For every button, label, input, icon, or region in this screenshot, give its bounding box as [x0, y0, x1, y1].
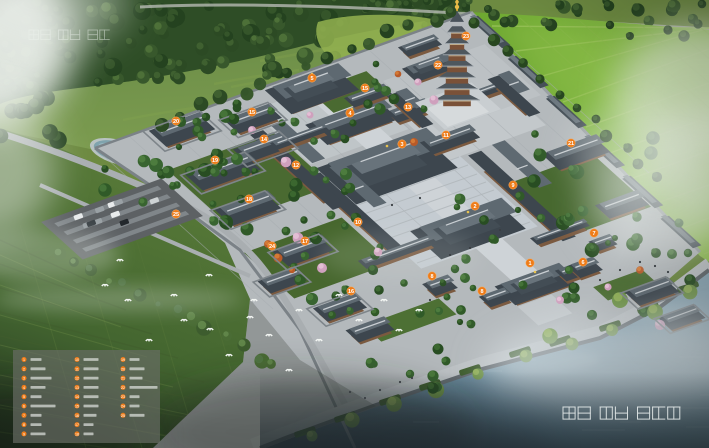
- svg-text:24: 24: [121, 405, 125, 409]
- svg-text:13: 13: [405, 105, 411, 111]
- svg-text:17: 17: [75, 423, 79, 427]
- svg-text:10: 10: [355, 220, 361, 226]
- svg-text:14: 14: [75, 395, 79, 399]
- svg-text:23: 23: [463, 34, 469, 40]
- svg-text:8: 8: [480, 289, 483, 295]
- svg-text:3: 3: [400, 142, 403, 148]
- svg-text:17: 17: [302, 239, 308, 245]
- svg-text:7: 7: [592, 231, 595, 237]
- svg-text:25: 25: [173, 212, 179, 218]
- svg-text:15: 15: [75, 405, 79, 409]
- svg-text:15: 15: [249, 110, 255, 116]
- svg-text:4: 4: [23, 386, 25, 390]
- svg-text:9: 9: [23, 432, 25, 436]
- svg-text:11: 11: [75, 367, 79, 371]
- svg-text:8: 8: [23, 423, 25, 427]
- svg-text:22: 22: [435, 63, 441, 69]
- svg-text:20: 20: [121, 367, 125, 371]
- svg-text:9: 9: [511, 183, 514, 189]
- svg-text:7: 7: [23, 414, 25, 418]
- svg-text:22: 22: [121, 386, 125, 390]
- svg-text:5: 5: [310, 76, 313, 82]
- svg-text:8: 8: [430, 274, 433, 280]
- svg-text:20: 20: [173, 119, 179, 125]
- svg-text:23: 23: [121, 395, 125, 399]
- svg-text:2: 2: [23, 367, 25, 371]
- svg-text:21: 21: [121, 377, 125, 381]
- svg-text:12: 12: [293, 163, 299, 169]
- svg-text:5: 5: [23, 395, 25, 399]
- svg-text:11: 11: [443, 133, 449, 139]
- svg-text:25: 25: [121, 414, 125, 418]
- svg-text:18: 18: [246, 197, 252, 203]
- svg-text:2: 2: [473, 204, 476, 210]
- svg-text:21: 21: [568, 141, 574, 147]
- svg-text:10: 10: [75, 358, 79, 362]
- svg-text:19: 19: [121, 358, 125, 362]
- svg-text:3: 3: [23, 377, 25, 381]
- svg-text:1: 1: [528, 261, 531, 267]
- svg-text:18: 18: [75, 432, 79, 436]
- svg-text:6: 6: [581, 260, 584, 266]
- svg-text:1: 1: [23, 358, 25, 362]
- svg-text:19: 19: [212, 158, 218, 164]
- svg-text:16: 16: [348, 289, 354, 295]
- svg-text:24: 24: [269, 244, 276, 250]
- svg-text:12: 12: [75, 377, 79, 381]
- svg-text:14: 14: [261, 137, 268, 143]
- svg-text:16: 16: [75, 414, 79, 418]
- svg-text:13: 13: [75, 386, 79, 390]
- svg-text:15: 15: [362, 86, 368, 92]
- svg-text:6: 6: [23, 405, 25, 409]
